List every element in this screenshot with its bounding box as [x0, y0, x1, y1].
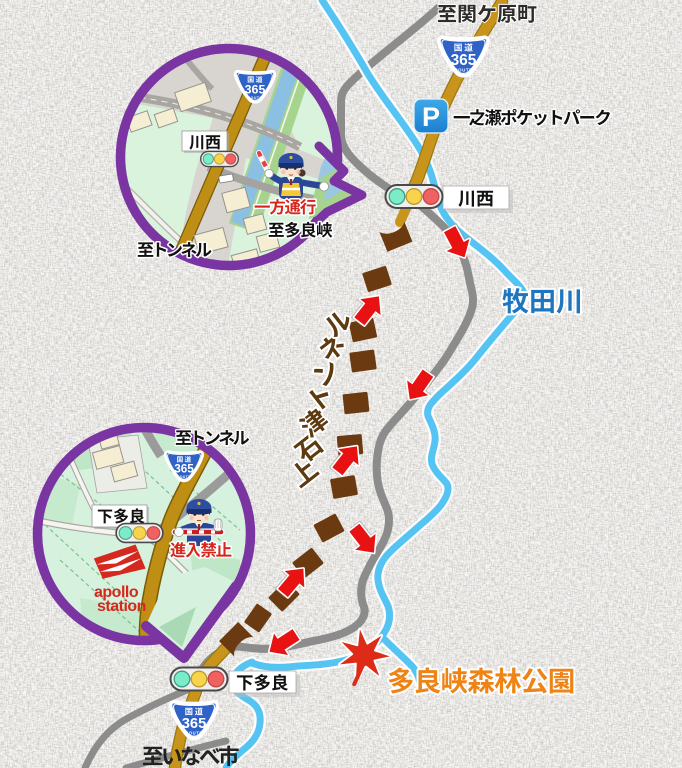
svg-text:station: station — [97, 598, 146, 615]
svg-text:P: P — [422, 102, 440, 132]
